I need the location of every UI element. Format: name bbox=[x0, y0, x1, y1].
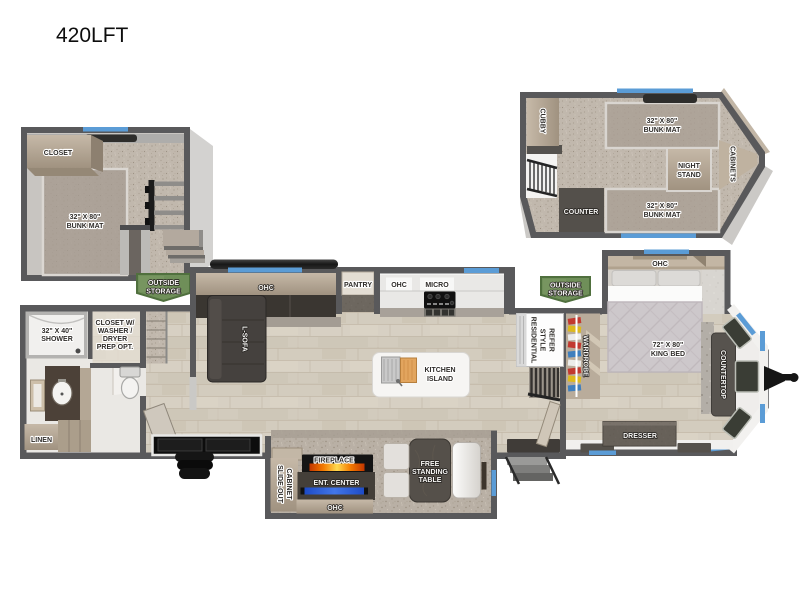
svg-text:OUTSIDE: OUTSIDE bbox=[550, 283, 581, 290]
svg-text:STANDING: STANDING bbox=[412, 469, 449, 476]
svg-text:KITCHEN: KITCHEN bbox=[424, 367, 455, 374]
svg-text:DRESSER: DRESSER bbox=[623, 433, 657, 440]
svg-text:OHC: OHC bbox=[652, 261, 668, 268]
svg-text:STYLE: STYLE bbox=[539, 329, 546, 352]
svg-text:WASHER /: WASHER / bbox=[98, 328, 133, 335]
svg-text:CUBBY: CUBBY bbox=[539, 109, 546, 134]
svg-text:STORAGE: STORAGE bbox=[146, 289, 181, 296]
svg-text:SHOWER: SHOWER bbox=[41, 336, 73, 343]
svg-text:FIREPLACE: FIREPLACE bbox=[314, 458, 354, 465]
svg-text:LINEN: LINEN bbox=[31, 437, 52, 444]
svg-text:OUTSIDE: OUTSIDE bbox=[148, 280, 179, 287]
svg-text:CLOSET W/: CLOSET W/ bbox=[96, 320, 135, 327]
svg-text:32" X 40": 32" X 40" bbox=[42, 328, 73, 335]
svg-text:KING BED: KING BED bbox=[651, 351, 685, 358]
svg-text:STAND: STAND bbox=[677, 172, 701, 179]
svg-text:CABINETS: CABINETS bbox=[729, 146, 736, 182]
svg-text:OHC: OHC bbox=[258, 285, 274, 292]
svg-text:L-SOFA: L-SOFA bbox=[241, 326, 248, 352]
svg-text:DRYER: DRYER bbox=[103, 336, 127, 343]
svg-text:TABLE: TABLE bbox=[419, 477, 442, 484]
svg-text:ENT. CENTER: ENT. CENTER bbox=[314, 480, 360, 487]
svg-text:COUNTERTOP: COUNTERTOP bbox=[719, 350, 726, 399]
svg-text:MICRO: MICRO bbox=[425, 282, 449, 289]
svg-text:BUNK MAT: BUNK MAT bbox=[67, 223, 105, 230]
svg-text:PANTRY: PANTRY bbox=[344, 282, 372, 289]
svg-text:32" X 80": 32" X 80" bbox=[647, 118, 678, 125]
svg-text:COUNTER: COUNTER bbox=[564, 209, 599, 216]
svg-text:72" X 80": 72" X 80" bbox=[653, 342, 684, 349]
svg-text:32" X 80": 32" X 80" bbox=[647, 203, 678, 210]
svg-text:STORAGE: STORAGE bbox=[548, 291, 583, 298]
svg-text:NIGHT: NIGHT bbox=[678, 163, 701, 170]
svg-text:ISLAND: ISLAND bbox=[427, 376, 453, 383]
svg-text:SLIDE-OUT: SLIDE-OUT bbox=[276, 465, 283, 503]
svg-text:BUNK MAT: BUNK MAT bbox=[644, 127, 682, 134]
svg-text:CLOSET: CLOSET bbox=[44, 150, 73, 157]
svg-text:PREP OPT.: PREP OPT. bbox=[97, 344, 133, 351]
svg-text:420LFT: 420LFT bbox=[56, 24, 129, 47]
svg-text:BUNK MAT: BUNK MAT bbox=[644, 212, 682, 219]
svg-text:RESIDENTIAL: RESIDENTIAL bbox=[530, 317, 537, 364]
svg-text:32" X 80": 32" X 80" bbox=[70, 214, 101, 221]
svg-text:WARDROBE: WARDROBE bbox=[582, 335, 589, 377]
svg-text:FREE: FREE bbox=[421, 461, 440, 468]
svg-text:REFER: REFER bbox=[548, 328, 555, 352]
svg-text:OHC: OHC bbox=[391, 282, 407, 289]
svg-text:OHC: OHC bbox=[327, 505, 343, 512]
svg-text:CABINET: CABINET bbox=[285, 468, 292, 500]
